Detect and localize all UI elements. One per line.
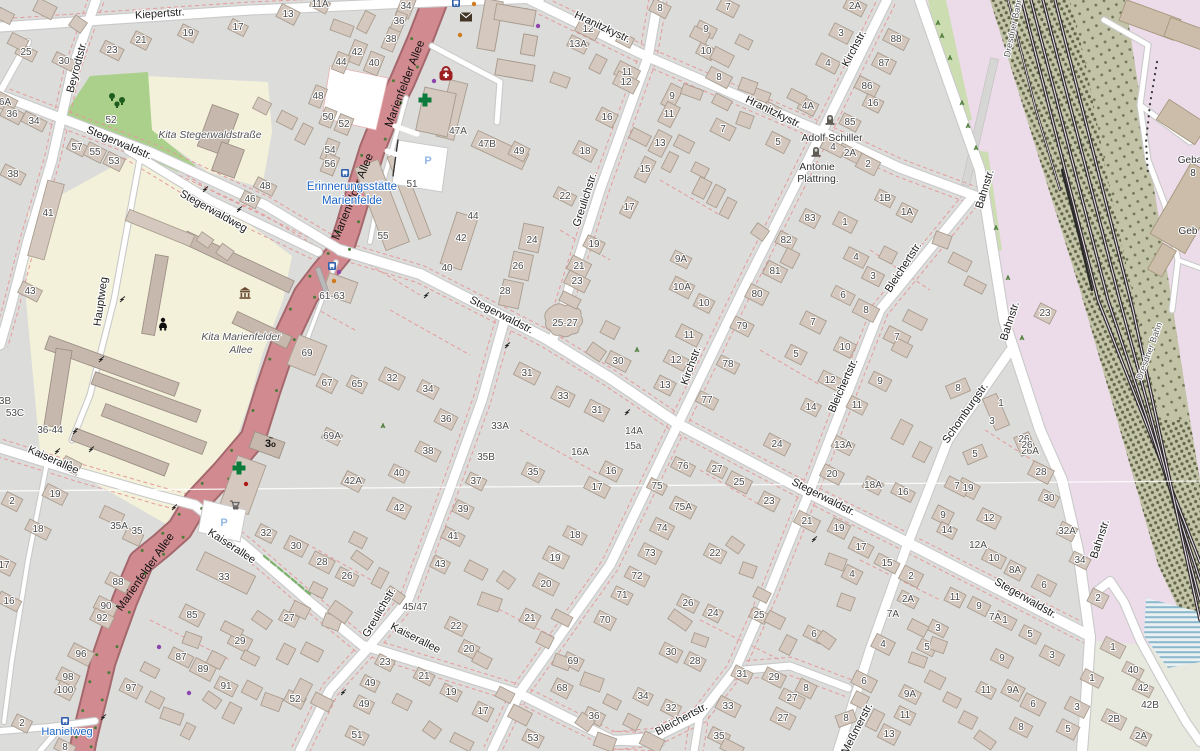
svg-text:23: 23 [571,276,583,287]
svg-text:69: 69 [567,656,579,667]
svg-text:20: 20 [463,644,475,655]
svg-text:24: 24 [707,608,719,619]
svg-text:30: 30 [612,356,624,367]
svg-text:18: 18 [579,146,591,157]
svg-text:70: 70 [599,615,611,626]
svg-text:13: 13 [282,9,294,20]
svg-text:23: 23 [106,45,118,56]
svg-text:5: 5 [1027,629,1033,640]
svg-text:10: 10 [700,46,712,57]
svg-text:5: 5 [1065,724,1071,735]
svg-text:38: 38 [7,169,19,180]
svg-text:36: 36 [6,109,18,120]
svg-text:31: 31 [736,669,748,680]
svg-text:87: 87 [878,58,890,69]
svg-text:34: 34 [422,384,434,395]
svg-text:17: 17 [591,482,603,493]
svg-text:19: 19 [833,523,845,534]
svg-text:34: 34 [28,116,40,127]
svg-text:69A: 69A [323,431,341,442]
svg-text:92: 92 [96,613,108,624]
svg-text:11: 11 [664,109,675,120]
svg-text:42: 42 [455,233,467,244]
svg-text:17: 17 [855,542,867,553]
svg-text:69: 69 [301,348,313,359]
svg-text:10: 10 [839,342,851,353]
svg-text:61-63: 61-63 [319,291,345,302]
svg-text:34: 34 [637,691,649,702]
svg-text:4A: 4A [802,101,815,112]
svg-text:52: 52 [289,694,301,705]
svg-text:49: 49 [364,678,376,689]
svg-text:72: 72 [631,571,643,582]
svg-text:35: 35 [131,526,143,537]
svg-text:27: 27 [777,713,789,724]
svg-text:7: 7 [725,2,731,13]
svg-text:Adolf Schiller: Adolf Schiller [801,132,863,144]
svg-text:9A: 9A [675,254,688,265]
svg-text:47B: 47B [478,139,496,150]
svg-text:8: 8 [1018,722,1024,733]
svg-text:1: 1 [1089,673,1095,684]
svg-text:11: 11 [950,592,961,603]
svg-text:1B: 1B [879,193,892,204]
svg-text:79: 79 [736,321,748,332]
svg-text:85: 85 [186,610,198,621]
svg-text:3B: 3B [0,396,11,407]
svg-text:25: 25 [733,477,745,488]
svg-text:1: 1 [1002,615,1008,626]
svg-text:11A: 11A [311,0,328,10]
svg-text:27: 27 [786,693,798,704]
svg-text:28: 28 [499,286,511,297]
svg-text:28: 28 [316,557,328,568]
svg-text:3: 3 [1074,702,1080,713]
svg-text:2A: 2A [1135,731,1148,742]
svg-text:35: 35 [527,467,539,478]
svg-text:31: 31 [521,368,533,379]
svg-text:Plattring.: Plattring. [797,173,838,185]
svg-text:9: 9 [877,376,883,387]
svg-text:13A: 13A [834,440,852,451]
svg-text:21: 21 [573,261,585,272]
svg-text:5: 5 [775,137,781,148]
svg-text:7: 7 [954,481,960,492]
svg-text:25: 25 [20,47,32,58]
svg-text:26: 26 [682,598,694,609]
svg-text:81: 81 [769,266,781,277]
svg-text:19: 19 [445,687,457,698]
svg-text:8: 8 [62,742,68,751]
svg-text:11: 11 [684,330,695,341]
svg-text:19: 19 [549,553,561,564]
svg-text:23: 23 [379,657,391,668]
svg-text:8: 8 [863,305,869,316]
svg-text:36: 36 [393,16,405,27]
svg-text:3: 3 [935,623,941,634]
svg-text:30: 30 [1043,493,1055,504]
svg-text:P: P [220,517,227,529]
svg-text:42: 42 [351,47,363,58]
svg-text:17: 17 [232,22,244,33]
svg-text:7A: 7A [989,612,1002,623]
svg-text:30: 30 [58,56,70,67]
svg-text:48: 48 [312,91,324,102]
svg-text:2A: 2A [844,148,857,159]
svg-text:21: 21 [801,516,813,527]
svg-text:71: 71 [616,590,628,601]
svg-text:19: 19 [182,28,194,39]
svg-text:40: 40 [441,263,453,274]
svg-text:41: 41 [42,208,54,219]
svg-text:3: 3 [1049,650,1055,661]
svg-text:4: 4 [880,639,886,650]
svg-text:32: 32 [665,703,677,714]
svg-text:96: 96 [75,649,87,660]
svg-text:20: 20 [826,469,838,480]
svg-text:20: 20 [540,579,552,590]
svg-text:6: 6 [811,629,817,640]
svg-text:27: 27 [711,464,723,475]
svg-text:1: 1 [1110,642,1116,653]
svg-text:12: 12 [983,513,995,524]
svg-text:6: 6 [1041,580,1047,591]
svg-text:29: 29 [234,636,246,647]
svg-text:100: 100 [57,685,74,696]
svg-text:19: 19 [588,239,600,250]
svg-text:26: 26 [512,261,524,272]
svg-text:10: 10 [988,553,1000,564]
svg-text:17: 17 [623,202,635,213]
svg-text:13: 13 [883,729,895,740]
svg-text:30: 30 [665,647,677,658]
svg-text:73: 73 [644,548,656,559]
svg-text:19: 19 [962,483,974,494]
svg-text:35: 35 [713,731,725,742]
svg-text:86: 86 [861,81,873,92]
svg-text:17: 17 [477,706,489,717]
svg-text:75: 75 [651,481,663,492]
svg-text:43: 43 [24,286,36,297]
svg-text:2B: 2B [1108,714,1121,725]
svg-text:49: 49 [358,699,370,710]
svg-text:15: 15 [639,164,651,175]
svg-text:5: 5 [924,642,930,653]
svg-text:52: 52 [105,115,117,126]
svg-text:7A: 7A [887,609,900,620]
svg-text:4: 4 [849,569,855,580]
svg-text:16A: 16A [571,447,589,458]
svg-text:35B: 35B [477,452,495,463]
svg-text:2: 2 [19,718,25,729]
svg-text:42: 42 [1137,683,1149,694]
svg-text:33: 33 [218,572,230,583]
svg-text:Kita Marienfelder: Kita Marienfelder [201,331,281,343]
svg-text:21: 21 [135,35,147,46]
svg-text:3: 3 [989,416,995,427]
svg-text:9A: 9A [904,689,917,700]
svg-text:74: 74 [656,523,668,534]
svg-text:11: 11 [852,400,863,411]
svg-text:75A: 75A [674,502,692,513]
svg-text:16: 16 [3,596,15,607]
svg-text:25·27: 25·27 [552,318,578,329]
svg-text:47A: 47A [449,126,467,137]
svg-text:55: 55 [89,147,101,158]
svg-text:16: 16 [897,487,909,498]
svg-text:91: 91 [220,681,232,692]
svg-text:13A: 13A [569,39,587,50]
svg-text:11: 11 [900,710,911,721]
svg-text:7: 7 [810,317,816,328]
svg-text:52: 52 [338,119,350,130]
svg-text:39: 39 [457,504,469,515]
svg-text:7: 7 [894,332,900,343]
svg-text:4: 4 [853,252,859,263]
svg-text:23: 23 [763,496,775,507]
svg-text:8: 8 [657,3,663,14]
svg-text:55: 55 [377,231,389,242]
svg-text:28: 28 [689,656,701,667]
svg-text:57: 57 [71,142,83,153]
svg-text:12A: 12A [969,540,987,551]
svg-text:85: 85 [844,117,856,128]
svg-text:15: 15 [881,558,893,569]
svg-text:12: 12 [824,375,836,386]
svg-text:9: 9 [976,601,982,612]
svg-text:80: 80 [751,289,763,300]
svg-text:10: 10 [698,298,710,309]
svg-text:8A: 8A [1009,565,1022,576]
svg-text:1A: 1A [901,207,914,218]
svg-text:90: 90 [100,601,112,612]
svg-text:46: 46 [244,194,256,205]
svg-text:21: 21 [524,613,536,624]
svg-text:21: 21 [418,671,430,682]
svg-text:88: 88 [890,34,902,45]
svg-text:53: 53 [527,733,539,744]
svg-text:38: 38 [385,34,397,45]
svg-text:15a: 15a [625,441,642,452]
svg-text:78: 78 [722,359,734,370]
svg-text:Geb: Geb [1179,226,1198,237]
svg-text:22: 22 [709,548,721,559]
svg-text:97: 97 [125,683,137,694]
svg-text:2A: 2A [849,1,862,12]
svg-text:36: 36 [588,711,600,722]
svg-text:44: 44 [335,57,347,68]
svg-text:33: 33 [557,391,569,402]
svg-text:38: 38 [422,446,434,457]
svg-text:18: 18 [569,530,581,541]
svg-text:32: 32 [260,528,272,539]
svg-text:Allee: Allee [228,344,253,356]
svg-text:P: P [424,155,431,167]
svg-text:36: 36 [440,414,452,425]
svg-text:53C: 53C [6,408,24,419]
svg-text:42B: 42B [1141,700,1159,711]
svg-text:5: 5 [793,349,799,360]
svg-text:51: 51 [351,730,363,741]
svg-text:9A: 9A [1007,685,1020,696]
svg-text:98: 98 [62,672,74,683]
svg-text:Marienfelde: Marienfelde [322,195,382,207]
svg-text:43: 43 [434,559,446,570]
svg-text:48: 48 [259,181,271,192]
svg-text:40: 40 [1127,665,1139,676]
svg-text:42: 42 [393,503,405,514]
svg-text:87: 87 [175,652,187,663]
svg-text:16: 16 [601,112,613,123]
svg-text:11: 11 [981,685,992,696]
svg-text:18A: 18A [864,480,882,491]
svg-text:8: 8 [955,383,961,394]
svg-text:18: 18 [32,524,44,535]
svg-text:2: 2 [908,571,914,582]
svg-text:22: 22 [450,621,462,632]
svg-text:16: 16 [605,466,617,477]
svg-text:44: 44 [467,211,479,222]
svg-text:13: 13 [659,380,671,391]
svg-text:2: 2 [865,159,871,170]
svg-text:1: 1 [998,398,1004,409]
svg-text:9: 9 [669,91,675,102]
svg-text:2: 2 [9,496,15,507]
svg-text:8: 8 [716,72,722,83]
svg-text:41: 41 [447,531,459,542]
svg-text:40: 40 [393,468,405,479]
svg-text:42A: 42A [344,476,362,487]
svg-text:19: 19 [49,489,61,500]
svg-text:16: 16 [867,98,879,109]
svg-text:13: 13 [654,138,666,149]
svg-text:Geba: Geba [1178,155,1200,166]
svg-text:26: 26 [1021,440,1033,451]
svg-text:32: 32 [386,373,398,384]
svg-text:14: 14 [805,402,817,413]
svg-text:77: 77 [701,395,713,406]
svg-text:9: 9 [703,24,709,35]
svg-text:24: 24 [771,439,783,450]
svg-text:28: 28 [1035,467,1047,478]
svg-text:82: 82 [780,235,792,246]
svg-text:14A: 14A [625,426,643,437]
svg-text:6A: 6A [0,97,11,108]
svg-text:35A: 35A [110,521,128,532]
svg-text:34: 34 [400,1,412,12]
svg-text:22: 22 [559,191,571,202]
svg-text:Kita Stegerwaldstraße: Kita Stegerwaldstraße [158,129,261,141]
svg-text:30: 30 [290,541,302,552]
svg-text:4: 4 [825,58,831,69]
svg-text:3: 3 [838,28,844,39]
svg-text:53: 53 [108,156,120,167]
svg-text:51: 51 [406,179,418,190]
svg-text:25: 25 [753,610,765,621]
svg-text:2A: 2A [902,594,915,605]
svg-text:12: 12 [620,77,632,88]
svg-text:3: 3 [870,271,876,282]
svg-text:40: 40 [368,58,380,69]
svg-text:54: 54 [324,145,336,156]
svg-text:67: 67 [321,378,333,389]
svg-text:6: 6 [1030,699,1036,710]
svg-text:26: 26 [341,571,353,582]
svg-text:27: 27 [283,613,295,624]
svg-text:83: 83 [804,213,816,224]
svg-text:56: 56 [324,159,336,170]
svg-text:Hanielweg: Hanielweg [41,726,92,738]
svg-text:50: 50 [322,112,334,123]
svg-text:89: 89 [197,664,209,675]
svg-text:68: 68 [556,683,568,694]
svg-text:7: 7 [720,124,726,135]
svg-text:~: ~ [269,436,273,443]
svg-text:24: 24 [526,235,538,246]
svg-text:37: 37 [470,476,482,487]
svg-text:Erinnerungsstätte: Erinnerungsstätte [307,181,397,193]
svg-text:8: 8 [843,713,849,724]
svg-text:32A: 32A [1058,526,1076,537]
svg-text:36-44: 36-44 [37,425,63,436]
svg-text:1: 1 [842,217,848,228]
svg-text:Antonie: Antonie [799,161,835,173]
svg-text:2: 2 [1095,593,1101,604]
svg-text:31: 31 [591,405,603,416]
svg-text:6: 6 [840,290,846,301]
svg-text:33: 33 [722,701,734,712]
svg-text:45/47: 45/47 [402,602,427,613]
svg-text:9: 9 [940,510,946,521]
svg-text:23: 23 [1039,308,1051,319]
svg-text:10A: 10A [673,282,691,293]
svg-text:9: 9 [999,653,1005,664]
svg-text:76: 76 [677,461,689,472]
svg-text:33A: 33A [491,421,509,432]
svg-text:5: 5 [972,449,978,460]
svg-text:12: 12 [670,355,682,366]
svg-text:14: 14 [941,525,953,536]
svg-text:17: 17 [0,560,10,571]
svg-text:34: 34 [1074,555,1086,566]
svg-text:8: 8 [803,683,809,694]
svg-text:49: 49 [513,146,525,157]
svg-text:6: 6 [861,676,867,687]
svg-text:29: 29 [768,672,780,683]
svg-text:8: 8 [1190,168,1196,179]
svg-text:65: 65 [351,379,363,390]
svg-text:88: 88 [112,577,124,588]
